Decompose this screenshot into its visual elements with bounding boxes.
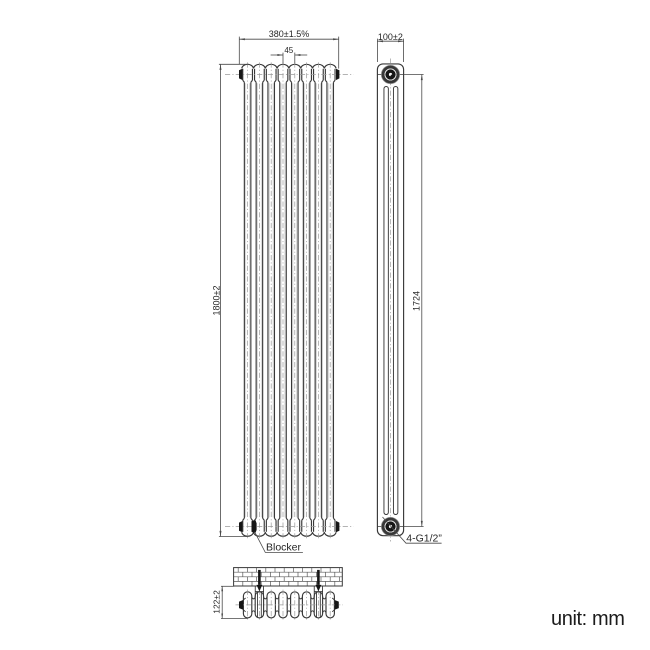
svg-text:380±1.5%: 380±1.5% [269,29,309,39]
svg-text:4-G1/2”: 4-G1/2” [406,532,442,544]
svg-text:45: 45 [284,46,293,55]
svg-text:Blocker: Blocker [266,542,302,554]
svg-text:1800±2: 1800±2 [211,286,221,316]
svg-text:1724: 1724 [411,291,421,311]
svg-text:122±2: 122±2 [212,590,222,614]
svg-text:100±2: 100±2 [378,32,403,42]
svg-text:unit: mm: unit: mm [551,608,624,630]
